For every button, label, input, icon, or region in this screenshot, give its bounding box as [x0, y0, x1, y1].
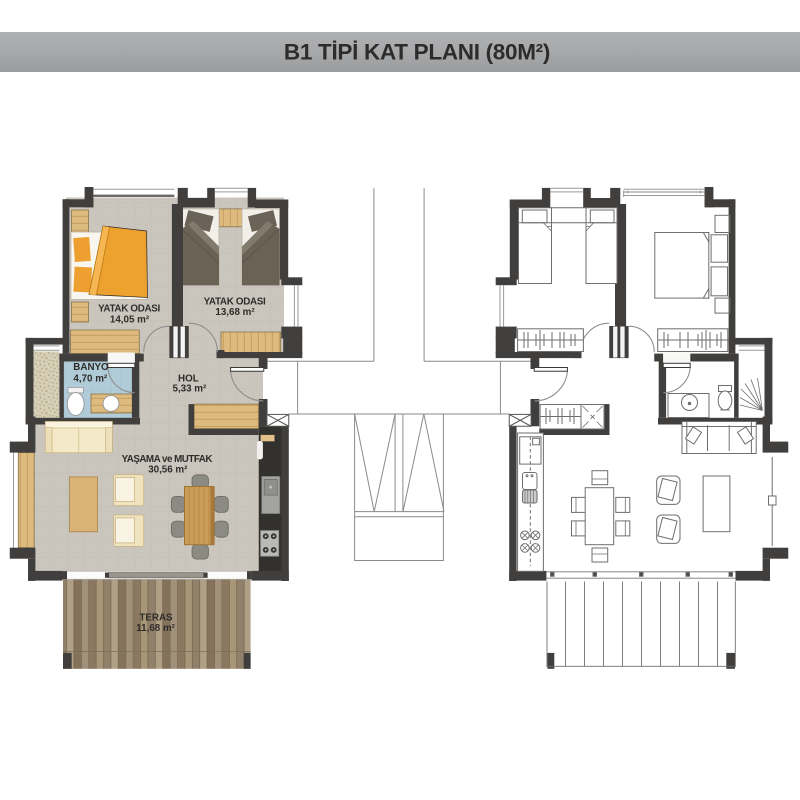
- svg-text:YATAK ODASI: YATAK ODASI: [98, 304, 160, 315]
- svg-text:11,68 m²: 11,68 m²: [136, 623, 175, 634]
- svg-text:5,33 m²: 5,33 m²: [173, 384, 208, 395]
- svg-text:B1 TİPİ KAT PLANI (80M²): B1 TİPİ KAT PLANI (80M²): [284, 40, 550, 65]
- svg-text:14,05 m²: 14,05 m²: [110, 315, 150, 326]
- svg-text:BANYO: BANYO: [73, 362, 109, 373]
- svg-text:30,56 m²: 30,56 m²: [148, 464, 188, 475]
- svg-text:YAŞAMA ve MUTFAK: YAŞAMA ve MUTFAK: [122, 454, 213, 465]
- svg-text:TERAS: TERAS: [139, 613, 173, 624]
- svg-text:13,68 m²: 13,68 m²: [215, 307, 255, 318]
- svg-text:4,70 m²: 4,70 m²: [73, 374, 108, 385]
- svg-text:YATAK ODASI: YATAK ODASI: [204, 297, 266, 308]
